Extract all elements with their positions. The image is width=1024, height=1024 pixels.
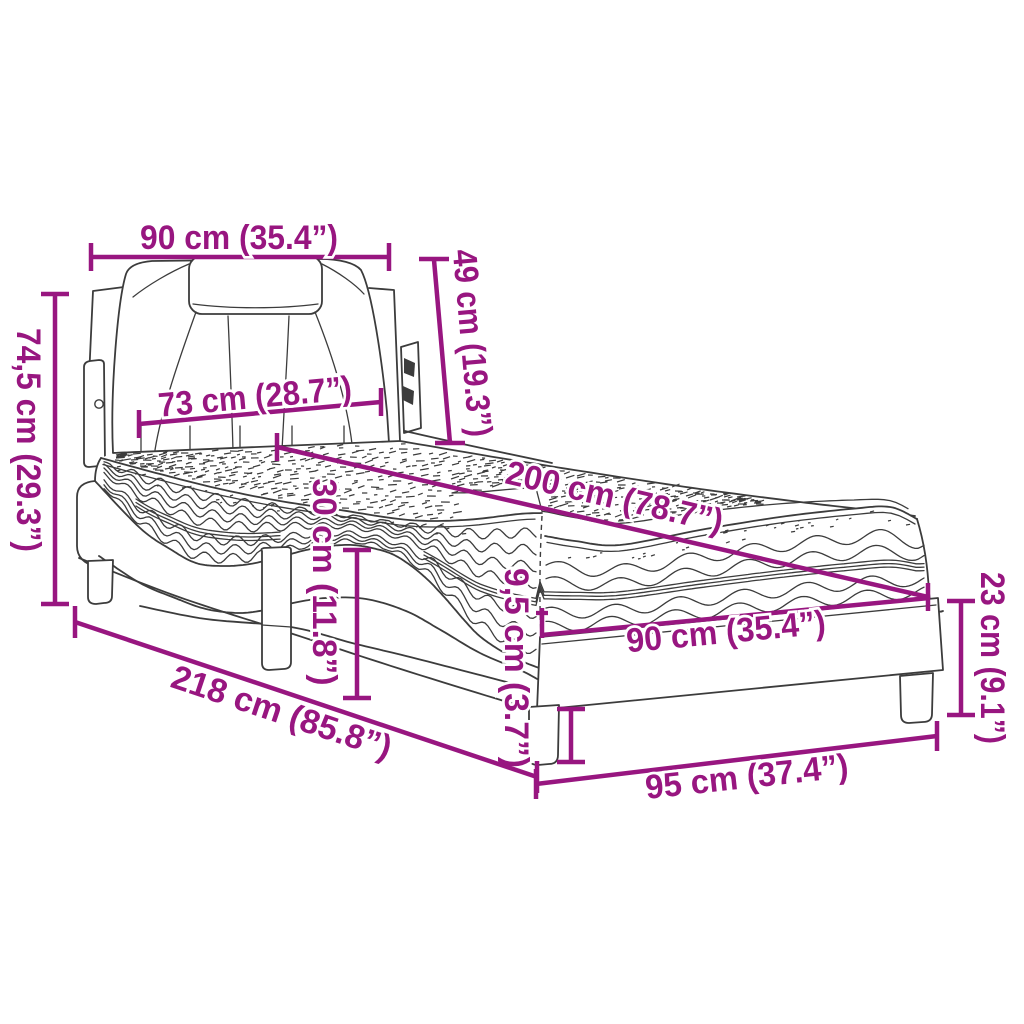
svg-text:90 cm (35.4”): 90 cm (35.4”) (140, 219, 338, 257)
svg-text:9,5 cm (3.7”): 9,5 cm (3.7”) (497, 568, 535, 768)
svg-text:23 cm (9.1”): 23 cm (9.1”) (973, 572, 1011, 744)
svg-text:30 cm (11.8”): 30 cm (11.8”) (305, 479, 343, 686)
svg-text:74,5 cm (29.3”): 74,5 cm (29.3”) (9, 328, 47, 552)
